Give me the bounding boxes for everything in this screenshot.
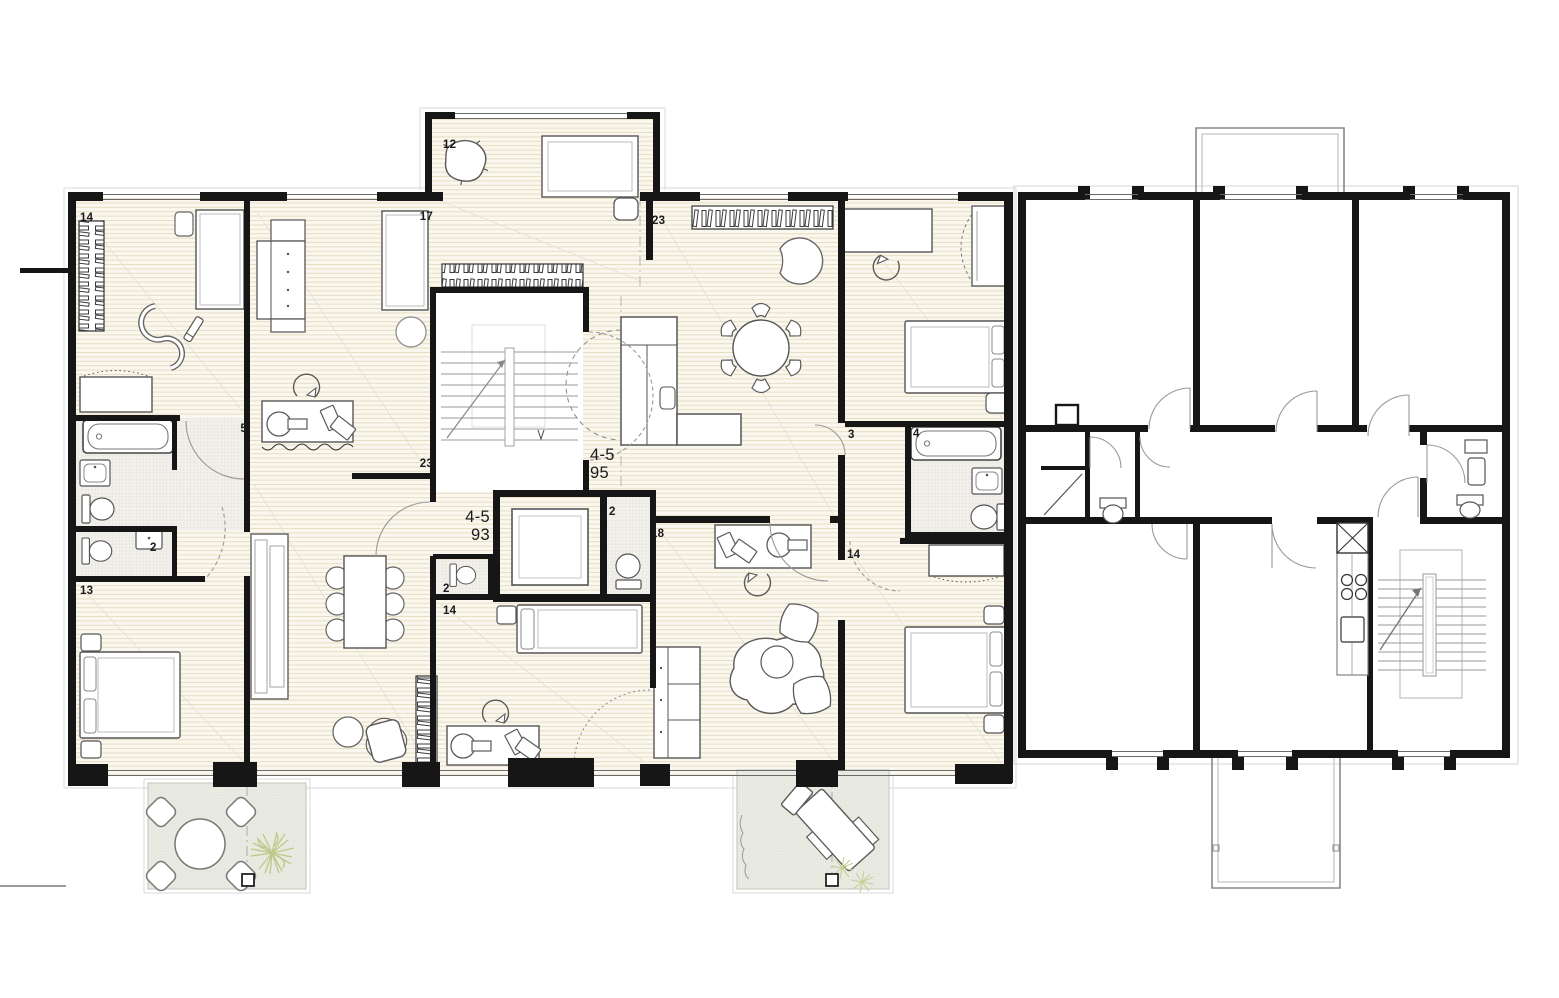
crescent-chair [780, 238, 823, 284]
toilet-bowl [1103, 505, 1123, 523]
pillow [614, 198, 638, 220]
wall-shelf [79, 221, 104, 331]
left-plan: 14 17 12 23 6 5 23 2 18 2 14 2 13 3 4 14… [20, 108, 1016, 893]
sink [1468, 458, 1485, 485]
bathtub [911, 427, 1001, 460]
apartment-label-95-line1: 4-5 [590, 446, 615, 464]
right-plan-kitchen [1337, 523, 1368, 675]
elevator-car [512, 509, 588, 585]
rug [396, 317, 426, 347]
bathtub [83, 420, 173, 453]
room-label-3: 3 [848, 429, 855, 441]
desk [844, 209, 932, 252]
room-label-14-bottom-right: 14 [847, 549, 861, 561]
bookshelf [442, 264, 583, 287]
room-label-23-right: 23 [652, 215, 665, 227]
kitchen-sink [660, 387, 675, 409]
room-label-23-left: 23 [420, 458, 433, 470]
room-label-2-mid: 2 [443, 583, 450, 595]
dresser [929, 545, 1004, 582]
axis-marker [826, 874, 838, 886]
bed [542, 136, 638, 197]
apartment-label-95-line2: 95 [590, 464, 609, 482]
wc-right [616, 554, 641, 589]
terrace-left [144, 783, 306, 893]
washer [1465, 440, 1487, 453]
dining-table [344, 556, 386, 648]
apartment-label-93-line1: 4-5 [465, 508, 490, 526]
room-label-12: 12 [443, 139, 456, 151]
bed-double [80, 652, 180, 738]
room-label-17: 17 [420, 211, 433, 223]
cabinet [654, 647, 700, 758]
nightstand [497, 606, 516, 624]
balcony-top [1196, 128, 1344, 192]
room-label-4: 4 [913, 428, 920, 440]
sink [80, 460, 110, 486]
bed [517, 605, 642, 653]
bed-double [905, 321, 1009, 393]
right-plan [1014, 128, 1518, 888]
toilet [971, 504, 1006, 530]
room-label-14-mid: 14 [443, 605, 457, 617]
room-label-6: 6 [583, 296, 590, 308]
room-label-14-top-left: 14 [80, 212, 94, 224]
nightstand [81, 634, 101, 651]
room-label-13: 13 [80, 585, 93, 597]
sink [972, 468, 1002, 494]
small-sink [136, 531, 162, 549]
terrace-center [737, 768, 889, 893]
toilet [616, 554, 640, 578]
wardrobe [251, 534, 288, 699]
apartment-label-93-line2: 93 [471, 526, 490, 544]
kitchen-sink [1341, 617, 1364, 642]
pouf [333, 717, 363, 747]
bookshelf [692, 206, 833, 229]
room-label-2-right: 2 [609, 506, 616, 518]
nightstand [81, 741, 101, 758]
dresser [80, 371, 152, 413]
bed-single [196, 210, 244, 309]
nightstand [984, 715, 1004, 733]
room-label-5: 5 [240, 423, 247, 435]
nightstand [984, 606, 1004, 624]
bed-double [905, 627, 1007, 713]
room-label-2-left: 2 [150, 542, 157, 554]
bed-single [382, 211, 428, 310]
axis-marker [242, 874, 254, 886]
floor-plan-page: 14 17 12 23 6 5 23 2 18 2 14 2 13 3 4 14… [0, 0, 1559, 998]
floor-plan-drawing: 14 17 12 23 6 5 23 2 18 2 14 2 13 3 4 14… [0, 0, 1559, 998]
elevator [512, 509, 588, 585]
terrace-table [175, 819, 225, 869]
room-label-18: 18 [651, 528, 665, 540]
pillow [175, 212, 193, 236]
shaft [1056, 405, 1078, 425]
balcony-bottom [1212, 758, 1340, 888]
